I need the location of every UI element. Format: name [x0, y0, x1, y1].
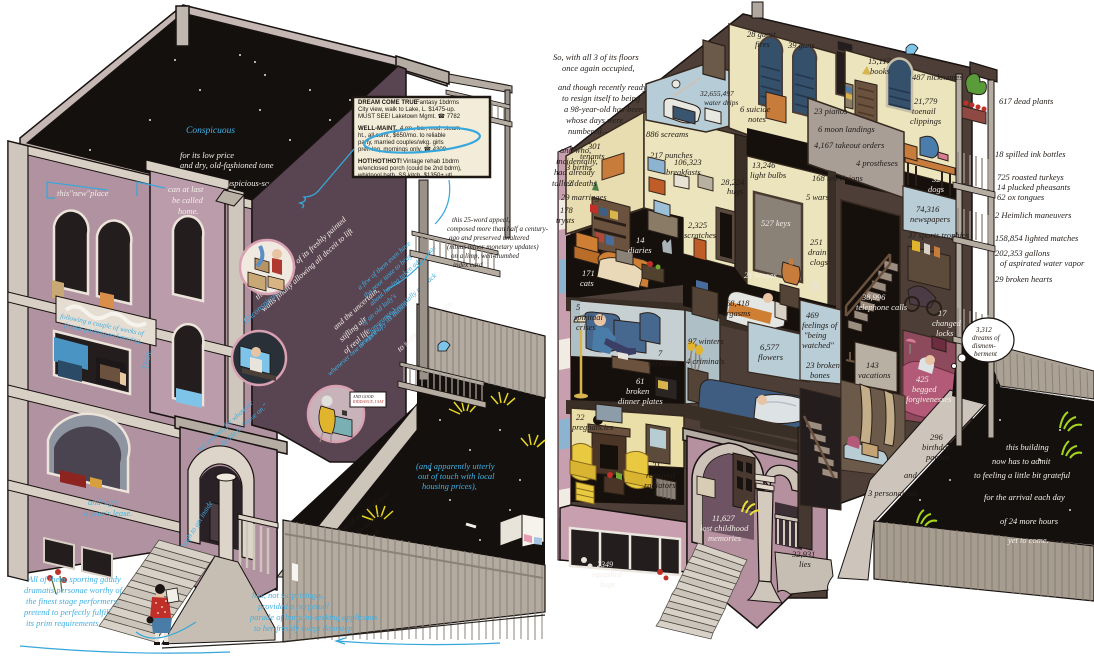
- svg-text:301: 301: [587, 141, 601, 151]
- svg-text:squashed: squashed: [592, 570, 623, 579]
- svg-text:books: books: [870, 66, 891, 76]
- svg-text:water drips: water drips: [704, 98, 738, 107]
- svg-text:2,325: 2,325: [688, 220, 707, 230]
- svg-text:birthday: birthday: [922, 442, 951, 452]
- svg-text:to her freshly swept doorstep.: to her freshly swept doorstep.: [254, 623, 355, 633]
- svg-text:forgivenesses: forgivenesses: [906, 394, 952, 404]
- svg-text:dramatis personae worthy of: dramatis personae worthy of: [24, 585, 124, 595]
- svg-text:a year's lease.: a year's lease.: [84, 508, 132, 518]
- svg-text:527 keys: 527 keys: [761, 218, 791, 228]
- svg-text:21,779: 21,779: [914, 96, 938, 106]
- svg-text:to feeling a little bit gratef: to feeling a little bit grateful: [974, 470, 1071, 480]
- svg-text:its prim requirements: its prim requirements: [26, 618, 99, 628]
- svg-text:38,996: 38,996: [861, 292, 886, 302]
- svg-text:pregnancies: pregnancies: [571, 422, 614, 432]
- svg-text:home.: home.: [178, 206, 199, 216]
- svg-text:dinner plates: dinner plates: [618, 396, 663, 406]
- svg-text:143: 143: [866, 360, 879, 370]
- svg-text:newspapers: newspapers: [910, 214, 951, 224]
- svg-text:11,627: 11,627: [712, 513, 735, 523]
- svg-text:City view, walk to Lake, L. $1: City view, walk to Lake, L. $1475-up.: [358, 107, 456, 113]
- svg-text:Conspicuous: Conspicuous: [186, 126, 235, 136]
- svg-text:So, with all 3 of its floors: So, with all 3 of its floors: [553, 52, 639, 62]
- svg-text:to resign itself to being: to resign itself to being: [562, 93, 640, 103]
- svg-text:106,323: 106,323: [674, 157, 702, 167]
- svg-text:notes: notes: [748, 114, 767, 124]
- svg-text:296: 296: [930, 432, 944, 442]
- svg-text:39 guns: 39 guns: [787, 40, 815, 50]
- svg-text:2 deaths: 2 deaths: [568, 178, 597, 188]
- svg-text:4 prostheses: 4 prostheses: [856, 158, 899, 168]
- svg-text:21 horses: 21 horses: [744, 270, 778, 280]
- svg-text:toenail: toenail: [912, 106, 936, 116]
- svg-text:15,117: 15,117: [868, 56, 891, 66]
- svg-text:dreams of: dreams of: [972, 334, 1001, 342]
- svg-text:MUST SEE! Laketown Mgmt. ☎ 778: MUST SEE! Laketown Mgmt. ☎ 7782: [358, 113, 461, 120]
- svg-text:3 births: 3 births: [565, 162, 593, 172]
- svg-text:w/enclosed porch (could be 2nd: w/enclosed porch (could be 2nd bdrm),: [357, 166, 462, 172]
- svg-text:flowers: flowers: [758, 352, 784, 362]
- svg-text:of 24 more hours: of 24 more hours: [1000, 516, 1059, 526]
- svg-text:62 ox tongues: 62 ox tongues: [997, 192, 1045, 202]
- svg-text:2 Heimlich maneuvers: 2 Heimlich maneuvers: [995, 210, 1072, 220]
- svg-text:171: 171: [582, 268, 595, 278]
- svg-text:DREAM COME TRUE: DREAM COME TRUE: [358, 100, 418, 106]
- svg-text:can at last: can at last: [168, 184, 204, 194]
- svg-text:HOT!HOT!HOT!: HOT!HOT!HOT!: [358, 159, 402, 165]
- svg-text:425: 425: [916, 374, 929, 384]
- svg-text:clippings: clippings: [910, 116, 942, 126]
- svg-text:crises: crises: [576, 322, 597, 332]
- svg-text:29 marriages: 29 marriages: [561, 192, 607, 202]
- svg-text:vacations: vacations: [858, 370, 891, 380]
- svg-text:ago and preserved unaltered: ago and preserved unaltered: [449, 234, 530, 242]
- svg-text:Fantasy 1bdrms: Fantasy 1bdrms: [416, 100, 459, 106]
- svg-text:yet to come.: yet to come.: [1007, 535, 1049, 545]
- svg-text:this building: this building: [1006, 442, 1049, 452]
- svg-text:party, married couples/wkg. gi: party, married couples/wkg. girls: [358, 140, 444, 146]
- svg-text:158,854 lighted matches: 158,854 lighted matches: [995, 233, 1079, 243]
- svg-text:and dry, old-fashioned tone: and dry, old-fashioned tone: [180, 160, 274, 170]
- svg-text:lies: lies: [799, 559, 811, 569]
- svg-text:469: 469: [806, 310, 820, 320]
- svg-text:composed more than half a cent: composed more than half a century-: [447, 225, 549, 233]
- svg-text:clogs: clogs: [810, 257, 829, 267]
- svg-text:berment: berment: [974, 350, 998, 358]
- svg-text:watched": watched": [802, 340, 834, 350]
- svg-text:14 plucked pheasants: 14 plucked pheasants: [997, 182, 1071, 192]
- svg-text:bones: bones: [810, 370, 831, 380]
- svg-text:32,655,497: 32,655,497: [699, 89, 734, 98]
- svg-text:orgasms: orgasms: [722, 308, 751, 318]
- svg-text:23 pianos: 23 pianos: [814, 106, 848, 116]
- svg-text:4 criminals: 4 criminals: [686, 356, 725, 366]
- svg-text:21: 21: [652, 460, 661, 470]
- svg-text:be called: be called: [172, 195, 204, 205]
- svg-text:28 guest: 28 guest: [747, 29, 776, 39]
- svg-text:feelings of: feelings of: [802, 320, 839, 330]
- svg-text:on a limp, well-thumbed: on a limp, well-thumbed: [451, 252, 520, 260]
- svg-text:out of touch with local: out of touch with local: [418, 471, 495, 481]
- svg-text:cats: cats: [580, 278, 594, 288]
- svg-text:17: 17: [938, 308, 947, 318]
- svg-text:spiritual: spiritual: [574, 312, 603, 322]
- svg-text:has, not surprisingly,: has, not surprisingly,: [252, 590, 324, 600]
- svg-text:provided a perpetual: provided a perpetual: [257, 601, 330, 611]
- svg-text:diaries: diaries: [628, 245, 652, 255]
- svg-text:locks: locks: [936, 328, 954, 338]
- svg-text:now has to admit: now has to admit: [992, 456, 1051, 466]
- svg-text:32: 32: [931, 174, 941, 184]
- svg-text:251: 251: [810, 237, 823, 247]
- svg-text:886 screams: 886 screams: [646, 129, 689, 139]
- svg-text:97 winters: 97 winters: [688, 336, 724, 346]
- svg-text:13,246: 13,246: [752, 160, 776, 170]
- svg-text:housing prices),: housing prices),: [422, 481, 477, 491]
- svg-text:once again occupied,: once again occupied,: [562, 63, 634, 73]
- svg-text:2349: 2349: [597, 560, 613, 569]
- svg-text:this 25-word appeal,: this 25-word appeal,: [452, 216, 510, 224]
- svg-text:29 broken hearts: 29 broken hearts: [995, 274, 1053, 284]
- svg-text:All of them, sporting gaudy: All of them, sporting gaudy: [27, 574, 121, 584]
- svg-text:3,312: 3,312: [975, 326, 992, 334]
- svg-text:fires: fires: [755, 39, 770, 49]
- svg-text:for its low price: for its low price: [180, 150, 234, 160]
- svg-text:bugs: bugs: [600, 580, 615, 589]
- svg-text:Vintage rehab 1bdrm: Vintage rehab 1bdrm: [403, 159, 459, 165]
- svg-text:pretend to perfectly fulfill: pretend to perfectly fulfill: [23, 607, 111, 617]
- svg-text:37 sports trophies: 37 sports trophies: [907, 230, 970, 240]
- svg-text:22: 22: [576, 412, 585, 422]
- svg-text:6 suicide: 6 suicide: [740, 104, 771, 114]
- svg-text:the finest stage performers,: the finest stage performers,: [26, 596, 119, 606]
- svg-text:removed: removed: [646, 470, 676, 480]
- svg-text:index card: index card: [453, 261, 483, 269]
- svg-text:a 98-year-old has-been: a 98-year-old has-been: [564, 104, 643, 114]
- svg-text:68,418: 68,418: [726, 298, 750, 308]
- svg-text:32,931: 32,931: [791, 549, 815, 559]
- svg-text:trysts: trysts: [556, 215, 575, 225]
- svg-text:6,577: 6,577: [760, 342, 780, 352]
- svg-text:168 televisions: 168 televisions: [812, 173, 863, 183]
- svg-text:14: 14: [636, 235, 645, 245]
- svg-text:"being: "being: [804, 330, 826, 340]
- svg-text:dogs: dogs: [928, 184, 945, 194]
- svg-text:617 dead plants: 617 dead plants: [999, 96, 1054, 106]
- svg-text:6 moon landings: 6 moon landings: [818, 124, 875, 134]
- svg-text:memories: memories: [708, 533, 742, 543]
- svg-text:changed: changed: [932, 318, 962, 328]
- svg-text:servants: servants: [648, 358, 677, 368]
- svg-text:telephone calls: telephone calls: [856, 302, 908, 312]
- svg-text:(and apparently utterly: (and apparently utterly: [416, 461, 495, 471]
- svg-text:and sign: and sign: [88, 497, 117, 507]
- svg-text:dismem-: dismem-: [972, 342, 996, 350]
- svg-text:lost childhood: lost childhood: [700, 523, 749, 533]
- svg-text:5: 5: [576, 302, 580, 312]
- svg-text:of aspirated water vapor: of aspirated water vapor: [1000, 258, 1085, 268]
- svg-text:487 nicknames: 487 nicknames: [912, 72, 963, 82]
- svg-text:scratches: scratches: [684, 230, 717, 240]
- svg-text:parade of bargain-seeking appl: parade of bargain-seeking applicants: [249, 612, 378, 622]
- svg-text:tenants: tenants: [580, 151, 605, 161]
- svg-text:61: 61: [636, 376, 645, 386]
- svg-text:18 spilled ink bottles: 18 spilled ink bottles: [995, 149, 1066, 159]
- svg-text:202,353 gallons: 202,353 gallons: [995, 248, 1050, 258]
- svg-text:whose days were: whose days were: [566, 115, 624, 125]
- svg-text:4,167 takeout orders: 4,167 takeout orders: [814, 140, 885, 150]
- svg-text:begged: begged: [912, 384, 937, 394]
- svg-text:parties: parties: [925, 452, 950, 462]
- svg-text:numbered—: numbered—: [568, 126, 610, 136]
- svg-text:whirlpool bath, SS kitch. $135: whirlpool bath, SS kitch. $1350+ utl.: [357, 173, 454, 179]
- svg-text:178: 178: [560, 205, 574, 215]
- svg-text:hugs: hugs: [727, 186, 744, 196]
- svg-text:5 wars: 5 wars: [806, 192, 830, 202]
- svg-text:breakfasts: breakfasts: [666, 167, 701, 177]
- svg-text:broken: broken: [626, 386, 649, 396]
- svg-text:74,316: 74,316: [916, 204, 940, 214]
- svg-text:725 roasted turkeys: 725 roasted turkeys: [997, 172, 1064, 182]
- svg-text:radiators: radiators: [644, 480, 676, 490]
- svg-text:and though recently ready: and though recently ready: [558, 82, 647, 92]
- svg-text:drain: drain: [808, 247, 826, 257]
- svg-text:for the arrival each day: for the arrival each day: [984, 492, 1065, 502]
- svg-text:3 personal ads: 3 personal ads: [867, 488, 919, 498]
- svg-text:23 broken: 23 broken: [806, 360, 840, 370]
- svg-text:(minus minor monetary updates): (minus minor monetary updates): [447, 243, 539, 251]
- svg-text:light bulbs: light bulbs: [750, 170, 787, 180]
- svg-text:and: and: [904, 470, 918, 480]
